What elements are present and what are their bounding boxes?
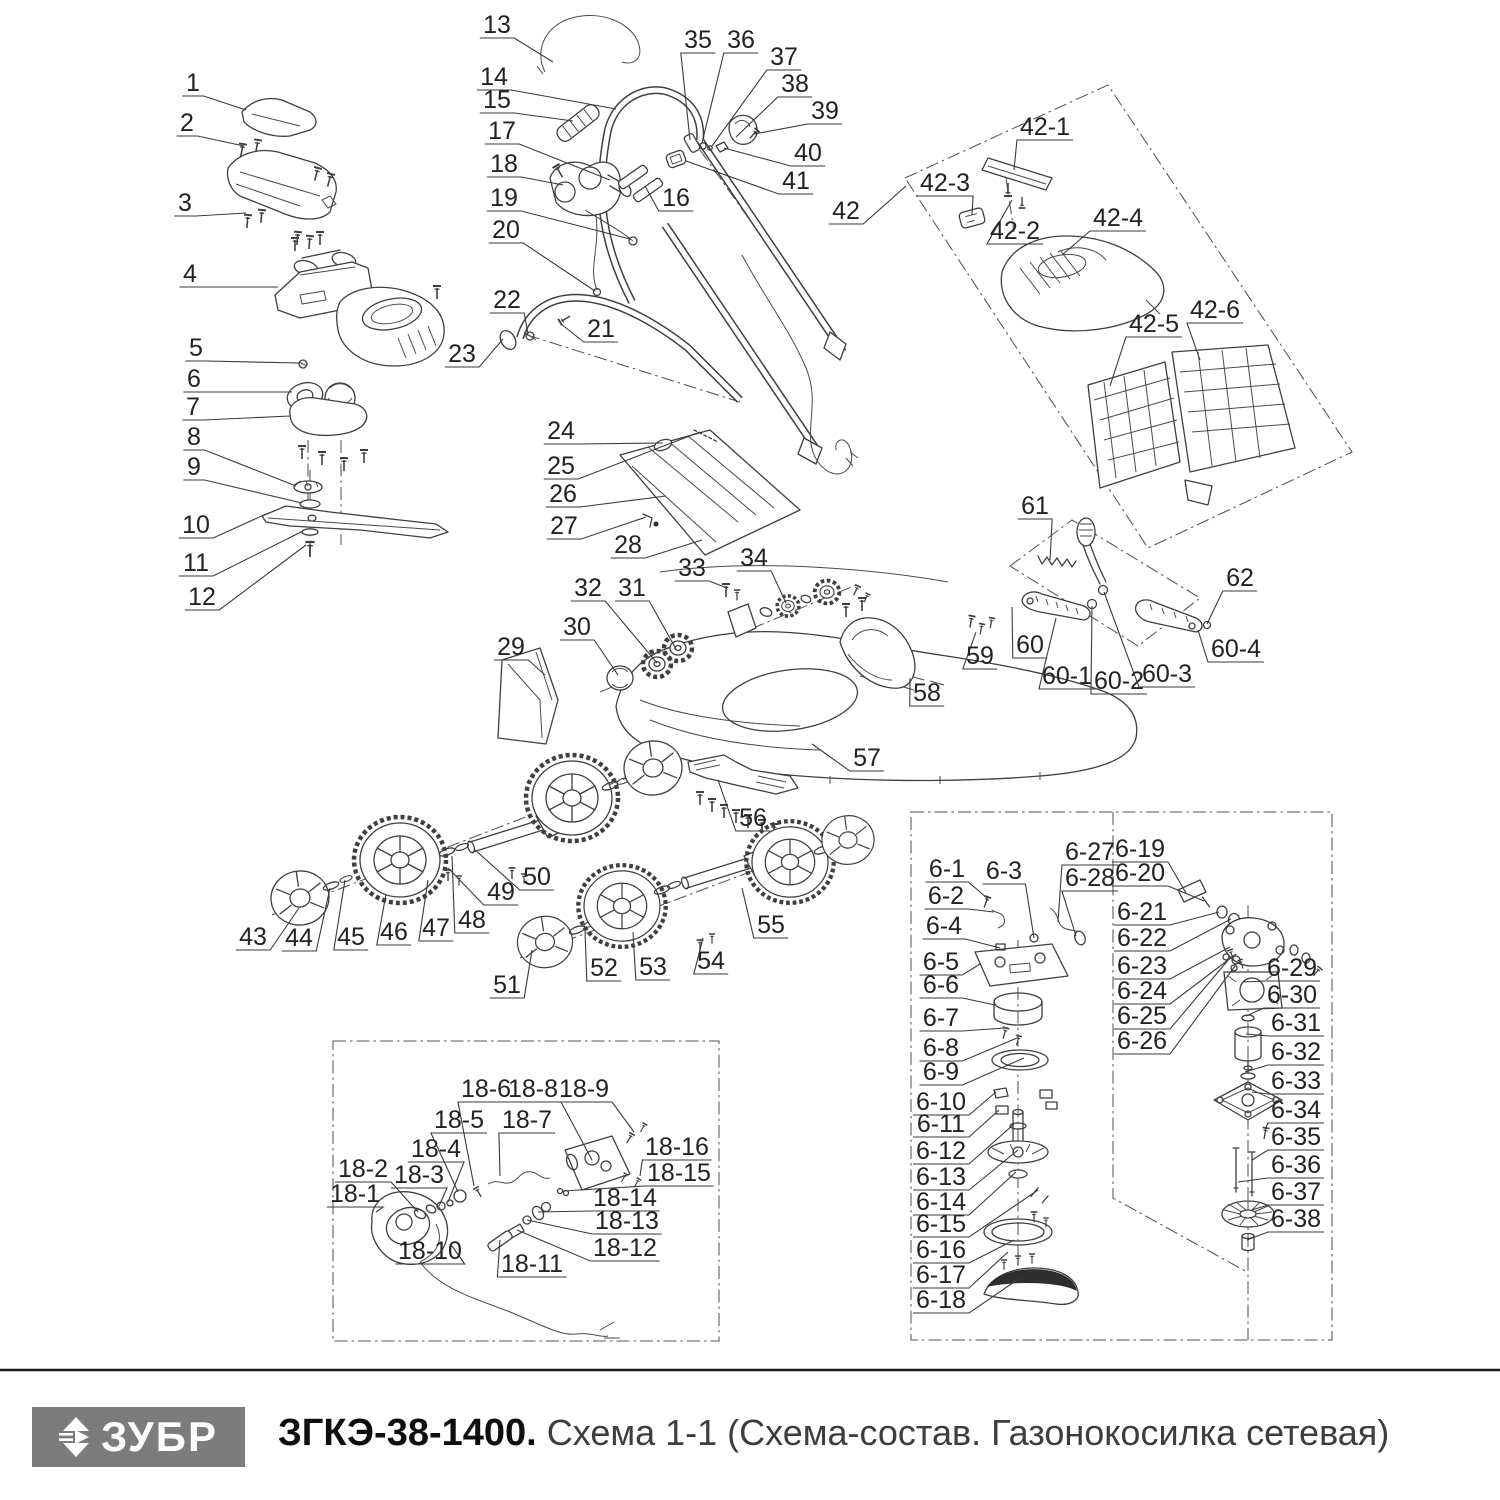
callout-number: 60-4 bbox=[1211, 635, 1261, 663]
callout-number: 6-16 bbox=[916, 1236, 966, 1264]
callout-number: 7 bbox=[186, 393, 200, 421]
callout-number: 6-27 bbox=[1065, 838, 1115, 866]
parts-diagram-page: 1234567891011121314151617181920212223242… bbox=[0, 0, 1500, 1500]
callout-number: 19 bbox=[490, 184, 518, 212]
callout-number: 18-11 bbox=[501, 1250, 563, 1278]
callout-number: 43 bbox=[239, 923, 267, 951]
callout-number: 6-23 bbox=[1117, 952, 1167, 980]
callout-number: 6-12 bbox=[916, 1137, 966, 1165]
callout-number: 6-9 bbox=[923, 1058, 959, 1086]
callout-number: 5 bbox=[189, 334, 203, 362]
callout-60-2: 60-2 bbox=[1091, 606, 1147, 695]
callout-number: 59 bbox=[966, 642, 994, 670]
callout-number: 6-15 bbox=[916, 1210, 966, 1238]
callout-number: 42-6 bbox=[1190, 296, 1240, 324]
callout-number: 18-6 bbox=[461, 1075, 511, 1103]
callout-number: 6-36 bbox=[1271, 1151, 1321, 1179]
callout-number: 50 bbox=[523, 863, 551, 891]
callout-39: 39 bbox=[754, 97, 842, 134]
callout-number: 6-6 bbox=[923, 971, 959, 999]
callout-number: 6-37 bbox=[1271, 1178, 1321, 1206]
callout-53: 53 bbox=[633, 932, 670, 981]
schema-subtitle: Схема 1-1 (Схема-состав. Газонокосилка с… bbox=[547, 1412, 1390, 1453]
callout-number: 6-38 bbox=[1271, 1205, 1321, 1233]
callout-number: 57 bbox=[853, 744, 881, 772]
callout-number: 18-8 bbox=[508, 1075, 558, 1103]
callout-6-21: 6-21 bbox=[1114, 898, 1219, 926]
callout-number: 3 bbox=[178, 189, 192, 217]
callout-number: 29 bbox=[497, 633, 525, 661]
callout-34: 34 bbox=[737, 544, 786, 603]
callout-24: 24 bbox=[544, 417, 663, 445]
callout-number: 1 bbox=[186, 69, 200, 97]
callout-18-9: 18-9 bbox=[556, 1075, 634, 1132]
callout-number: 6-17 bbox=[916, 1261, 966, 1289]
callout-13: 13 bbox=[480, 11, 553, 62]
callout-number: 41 bbox=[782, 167, 810, 195]
callout-number: 21 bbox=[587, 315, 615, 343]
callout-number: 18-7 bbox=[502, 1106, 552, 1134]
callout-6-6: 6-6 bbox=[920, 971, 995, 1005]
callout-number: 46 bbox=[380, 918, 408, 946]
callout-21: 21 bbox=[561, 315, 618, 343]
zubr-arrow-icon bbox=[59, 1417, 93, 1457]
callout-number: 18-4 bbox=[411, 1135, 461, 1163]
callout-number: 6-18 bbox=[916, 1286, 966, 1314]
callout-number: 6-7 bbox=[923, 1004, 959, 1032]
callout-number: 60-1 bbox=[1042, 662, 1092, 690]
callout-number: 37 bbox=[770, 43, 798, 71]
callout-number: 6-3 bbox=[986, 857, 1022, 885]
callout-50: 50 bbox=[474, 849, 554, 891]
callout-number: 61 bbox=[1021, 492, 1049, 520]
callout-7: 7 bbox=[182, 393, 290, 421]
callout-number: 33 bbox=[678, 554, 706, 582]
callout-6-23: 6-23 bbox=[1114, 947, 1230, 980]
callout-number: 55 bbox=[757, 911, 785, 939]
callout-18-14: 18-14 bbox=[538, 1184, 660, 1212]
callout-number: 18-12 bbox=[593, 1234, 657, 1262]
callout-number: 48 bbox=[458, 906, 486, 934]
callout-number: 54 bbox=[697, 947, 725, 975]
callout-number: 6-35 bbox=[1271, 1123, 1321, 1151]
callout-number: 32 bbox=[574, 574, 602, 602]
callout-60-1: 60-1 bbox=[1039, 618, 1095, 690]
callout-41: 41 bbox=[686, 161, 813, 195]
callout-number: 51 bbox=[493, 971, 521, 999]
callout-60-4: 60-4 bbox=[1198, 630, 1264, 663]
callout-number: 6-1 bbox=[929, 855, 965, 883]
callout-5: 5 bbox=[185, 334, 300, 363]
callout-2: 2 bbox=[176, 109, 244, 146]
callout-6-4: 6-4 bbox=[923, 912, 1000, 948]
callout-33: 33 bbox=[675, 554, 727, 588]
callout-number: 42-1 bbox=[1020, 113, 1070, 141]
callout-number: 28 bbox=[614, 531, 642, 559]
callout-number: 31 bbox=[618, 574, 646, 602]
callout-4: 4 bbox=[179, 260, 278, 288]
callout-number: 17 bbox=[488, 117, 516, 145]
callout-59: 59 bbox=[963, 632, 997, 670]
callout-number: 47 bbox=[422, 914, 450, 942]
callout-number: 6-31 bbox=[1271, 1009, 1321, 1037]
callout-number: 26 bbox=[549, 480, 577, 508]
callout-number: 18-1 bbox=[330, 1180, 380, 1208]
callout-15: 15 bbox=[480, 86, 573, 121]
callout-number: 6-30 bbox=[1267, 981, 1317, 1009]
callout-49: 49 bbox=[448, 868, 518, 906]
callout-number: 42-2 bbox=[990, 217, 1040, 245]
callout-61: 61 bbox=[1018, 492, 1052, 560]
callout-number: 6-24 bbox=[1117, 977, 1167, 1005]
callout-number: 18-15 bbox=[647, 1159, 711, 1187]
callout-number: 13 bbox=[483, 11, 511, 39]
callout-number: 52 bbox=[590, 954, 618, 982]
callout-48: 48 bbox=[452, 856, 489, 934]
callout-number: 11 bbox=[183, 549, 209, 577]
callout-number: 58 bbox=[913, 679, 941, 707]
callout-18-1: 18-1 bbox=[327, 1180, 383, 1212]
callout-1: 1 bbox=[182, 69, 246, 110]
model-number: ЗГКЭ-38-1400. bbox=[278, 1412, 537, 1454]
callout-number: 45 bbox=[337, 923, 365, 951]
callout-60: 60 bbox=[1012, 607, 1047, 659]
callout-number: 42-3 bbox=[920, 169, 970, 197]
callout-6-2: 6-2 bbox=[925, 882, 994, 912]
callout-18-11: 18-11 bbox=[497, 1240, 566, 1278]
callout-number: 42-5 bbox=[1129, 310, 1179, 338]
height-lever-cluster bbox=[966, 518, 1210, 635]
callout-number: 18-3 bbox=[394, 1161, 444, 1189]
callout-number: 6-13 bbox=[916, 1163, 966, 1191]
callout-number: 6-4 bbox=[926, 912, 962, 940]
callout-number: 22 bbox=[493, 286, 521, 314]
callout-number: 18-2 bbox=[338, 1155, 388, 1183]
schema-title: ЗГКЭ-38-1400.Схема 1-1 (Схема-состав. Га… bbox=[278, 1412, 1389, 1455]
callout-number: 18 bbox=[490, 150, 518, 178]
callout-30: 30 bbox=[560, 613, 618, 675]
callout-number: 42 bbox=[832, 197, 860, 225]
callout-number: 18-10 bbox=[398, 1237, 462, 1265]
callout-number: 6-21 bbox=[1117, 898, 1167, 926]
callout-number: 6-29 bbox=[1267, 954, 1317, 982]
callout-number: 9 bbox=[187, 453, 201, 481]
callout-6-28: 6-28 bbox=[1062, 864, 1118, 936]
callout-number: 18-9 bbox=[559, 1075, 609, 1103]
callout-number: 25 bbox=[547, 452, 575, 480]
exploded-view-drawing: 1234567891011121314151617181920212223242… bbox=[0, 0, 1500, 1500]
callout-number: 6-33 bbox=[1271, 1067, 1321, 1095]
callout-number: 6-32 bbox=[1271, 1038, 1321, 1066]
callout-42-2: 42-2 bbox=[987, 200, 1043, 245]
callout-6: 6 bbox=[183, 365, 292, 393]
callout-number: 16 bbox=[662, 184, 690, 212]
zubr-logo: ЗУБР bbox=[32, 1407, 245, 1467]
callout-62: 62 bbox=[1207, 564, 1257, 624]
callout-number: 10 bbox=[182, 511, 210, 539]
callout-number: 18-16 bbox=[645, 1133, 709, 1161]
callout-number: 27 bbox=[550, 512, 578, 540]
callout-number: 6-34 bbox=[1271, 1096, 1321, 1124]
zubr-logo-text: ЗУБР bbox=[101, 1416, 218, 1458]
callout-18-10: 18-10 bbox=[395, 1237, 464, 1265]
callout-number: 38 bbox=[781, 70, 809, 98]
upper-cover-cluster bbox=[228, 99, 337, 250]
callout-6-20: 6-20 bbox=[1112, 859, 1204, 901]
motor-blade-cluster bbox=[262, 379, 448, 557]
callout-9: 9 bbox=[183, 453, 302, 503]
callout-20: 20 bbox=[489, 216, 595, 291]
callout-number: 34 bbox=[740, 544, 768, 572]
callout-6-7: 6-7 bbox=[920, 1004, 1005, 1032]
callout-number: 39 bbox=[811, 97, 839, 125]
callout-number: 35 bbox=[684, 26, 712, 54]
callout-number: 56 bbox=[739, 804, 767, 832]
callout-number: 4 bbox=[183, 260, 197, 288]
callout-number: 60-3 bbox=[1142, 660, 1192, 688]
callout-number: 6-26 bbox=[1117, 1027, 1167, 1055]
callout-number: 2 bbox=[180, 109, 194, 137]
callout-number: 15 bbox=[483, 86, 511, 114]
callout-42-1: 42-1 bbox=[1014, 113, 1073, 170]
callout-number: 60 bbox=[1016, 631, 1044, 659]
callout-18-7: 18-7 bbox=[499, 1106, 555, 1176]
callout-number: 42-4 bbox=[1093, 204, 1143, 232]
callout-23: 23 bbox=[445, 339, 503, 368]
callout-42: 42 bbox=[829, 186, 906, 225]
callout-number: 6-20 bbox=[1115, 859, 1165, 887]
callout-45: 45 bbox=[334, 880, 368, 951]
callout-58: 58 bbox=[910, 678, 944, 707]
callout-number: 23 bbox=[448, 340, 476, 368]
callout-number: 6 bbox=[187, 365, 201, 393]
callout-54: 54 bbox=[694, 938, 728, 975]
callout-number: 40 bbox=[794, 139, 822, 167]
callout-number: 8 bbox=[187, 423, 201, 451]
callout-number: 62 bbox=[1226, 564, 1254, 592]
callout-6-11: 6-11 bbox=[913, 1110, 999, 1138]
callout-number: 6-11 bbox=[917, 1110, 965, 1138]
callout-number: 6-2 bbox=[928, 882, 964, 910]
callout-number: 6-22 bbox=[1117, 924, 1167, 952]
deck-bracket-cluster bbox=[275, 232, 444, 368]
callout-number: 6-28 bbox=[1065, 864, 1115, 892]
callout-10: 10 bbox=[179, 511, 266, 539]
callout-number: 20 bbox=[492, 216, 520, 244]
callout-number: 30 bbox=[563, 613, 591, 641]
callout-number: 24 bbox=[547, 417, 575, 445]
callout-number: 44 bbox=[285, 924, 313, 952]
callout-6-31: 6-31 bbox=[1246, 1009, 1324, 1037]
callout-number: 12 bbox=[188, 583, 216, 611]
callout-number: 53 bbox=[639, 953, 667, 981]
callout-number: 36 bbox=[727, 26, 755, 54]
callout-number: 6-25 bbox=[1117, 1002, 1167, 1030]
